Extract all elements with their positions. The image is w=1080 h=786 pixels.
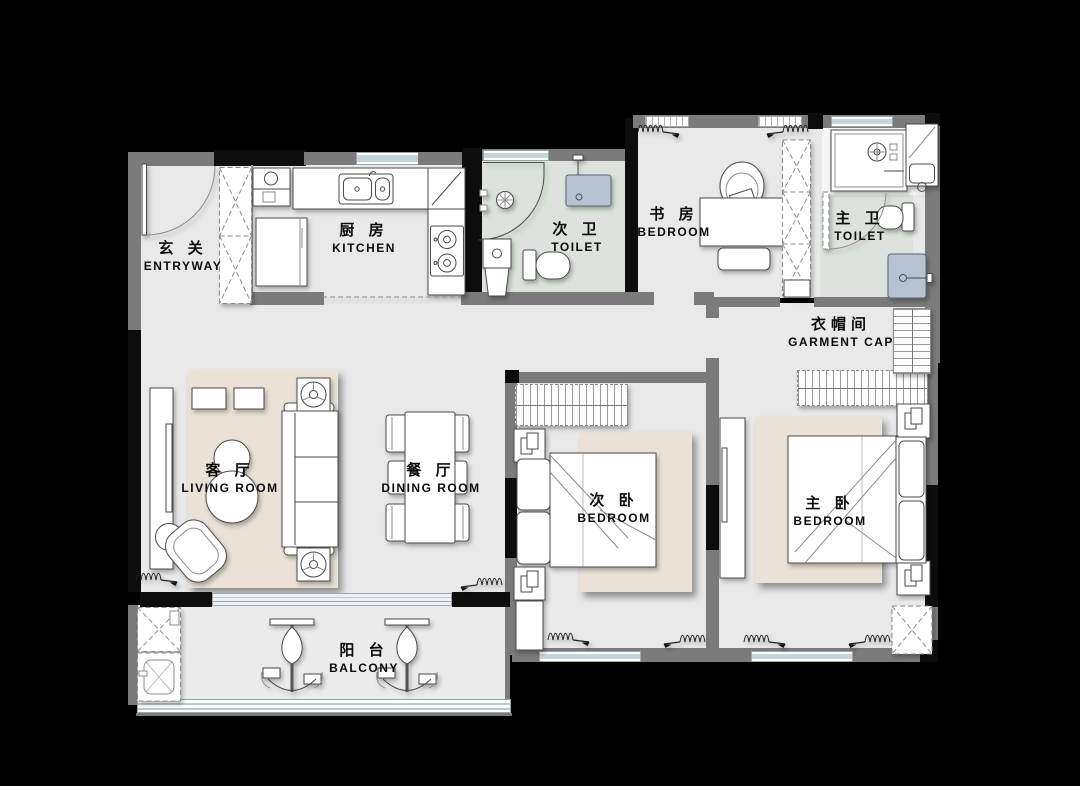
living-room-zh: 客 厅 (181, 459, 278, 480)
master-toilet-en: TOILET (834, 229, 885, 243)
entryway-en: ENTRYWAY (144, 259, 222, 273)
toilet2-toilet (523, 250, 570, 280)
balcony-zh: 阳 台 (329, 639, 399, 660)
garment-cap-en: GARMENT CAP (788, 335, 894, 349)
entry-door (142, 164, 215, 235)
living-plant-top (297, 378, 330, 411)
label-garment-cap: 衣帽间 GARMENT CAP (788, 313, 894, 349)
master-bedroom-zh: 主 卧 (793, 492, 866, 513)
secondary-toilet-en: TOILET (551, 240, 602, 254)
toilet1-shower (831, 130, 907, 191)
dining-room-zh: 餐 厅 (381, 459, 480, 480)
label-study: 书 房 BEDROOM (637, 203, 710, 239)
vent-arrow-bed1-bottom-left (744, 635, 786, 648)
label-master-bedroom: 主 卧 BEDROOM (793, 492, 866, 528)
label-balcony: 阳 台 BALCONY (329, 639, 399, 675)
toilet1-basin (906, 124, 938, 192)
secondary-bedroom-zh: 次 卧 (577, 489, 650, 510)
living-plant-bottom (297, 548, 330, 581)
bed2-nightstand-bottom (514, 567, 545, 600)
vent-arrow-balcony-right (461, 578, 503, 591)
toilet2-sink (566, 155, 611, 206)
kitchen-stove (431, 226, 464, 276)
study-en: BEDROOM (637, 225, 710, 239)
floorplan-canvas: 玄 关 ENTRYWAY 厨 房 KITCHEN 次 卫 TOILET 书 房 … (0, 0, 1080, 786)
living-room-en: LIVING ROOM (181, 481, 278, 495)
secondary-bedroom-en: BEDROOM (577, 511, 650, 525)
vent-arrow-bed2-door (548, 633, 590, 646)
label-master-toilet: 主 卫 TOILET (834, 207, 885, 243)
bed2-nightstand-top (514, 429, 545, 462)
label-secondary-bedroom: 次 卧 BEDROOM (577, 489, 650, 525)
balcony-plant-left (262, 619, 323, 692)
balcony-en: BALCONY (329, 661, 399, 675)
balcony-washer-top (138, 608, 181, 652)
toilet2-shower (479, 163, 545, 241)
bed2-door (516, 601, 543, 650)
toilet1-entry-door (784, 280, 810, 297)
living-trays (192, 388, 264, 409)
living-sofa (282, 403, 338, 555)
master-bedroom-en: BEDROOM (793, 514, 866, 528)
study-wardrobe (783, 140, 811, 296)
kitchen-zh: 厨 房 (332, 219, 396, 240)
dining-room-en: DINING ROOM (381, 481, 480, 495)
bed1-ac-unit (892, 606, 932, 654)
label-entryway: 玄 关 ENTRYWAY (144, 237, 222, 273)
vent-arrow-living (136, 573, 178, 586)
garment-cap-zh: 衣帽间 (788, 313, 894, 334)
kitchen-fridge (256, 218, 307, 286)
label-living-room: 客 厅 LIVING ROOM (181, 459, 278, 495)
bed1-nightstand-top (897, 404, 930, 438)
label-kitchen: 厨 房 KITCHEN (332, 219, 396, 255)
study-zh: 书 房 (637, 203, 710, 224)
label-dining-room: 餐 厅 DINING ROOM (381, 459, 480, 495)
bed1-nightstand-bottom (897, 561, 930, 595)
vent-arrow-bed2-bottom (664, 635, 706, 648)
balcony-washer-bottom (138, 653, 181, 701)
vent-arrow-study-right (767, 125, 809, 138)
master-toilet-zh: 主 卫 (834, 207, 885, 228)
vent-arrow-bed1-bottom-right (849, 635, 891, 648)
furniture-layer (0, 0, 1080, 786)
toilet1-sink (888, 254, 932, 298)
kitchen-en: KITCHEN (332, 241, 396, 255)
secondary-toilet-zh: 次 卫 (551, 218, 602, 239)
entry-cabinet (220, 168, 252, 304)
kitchen-sink (339, 172, 393, 204)
vent-arrow-study-left (638, 125, 680, 138)
study-desk (700, 198, 785, 270)
label-secondary-toilet: 次 卫 TOILET (551, 218, 602, 254)
bed1-tv-cabinet (720, 418, 745, 578)
toilet2-vanity (483, 239, 511, 296)
entryway-zh: 玄 关 (144, 237, 222, 258)
